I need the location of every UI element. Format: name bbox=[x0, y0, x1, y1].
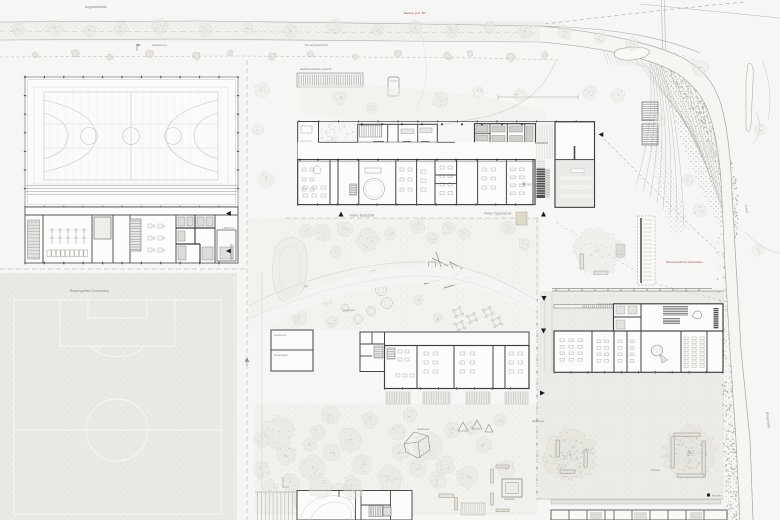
svg-text:Trottoir: Trottoir bbox=[744, 204, 749, 213]
svg-text:Augustastraße: Augustastraße bbox=[85, 5, 107, 9]
svg-text:582.30 m: 582.30 m bbox=[527, 183, 537, 186]
svg-text:Radabstellplätze gedeckt: Radabstellplätze gedeckt bbox=[300, 67, 331, 71]
svg-text:Baulinie gem. BP: Baulinie gem. BP bbox=[404, 11, 426, 15]
svg-text:Brunnen: Brunnen bbox=[712, 494, 722, 498]
svg-text:Spielwiese: Spielwiese bbox=[532, 419, 545, 423]
svg-text:3 Eichen: 3 Eichen bbox=[650, 468, 661, 472]
svg-text:Spielhügel: Spielhügel bbox=[417, 427, 430, 431]
svg-text:Kleine Basisstufe: Kleine Basisstufe bbox=[350, 214, 375, 218]
svg-text:Kleine Tagesschule: Kleine Tagesschule bbox=[484, 212, 512, 216]
svg-text:Besucherparkplatz: Besucherparkplatz bbox=[305, 43, 329, 47]
svg-text:± 582.30 m: ± 582.30 m bbox=[222, 227, 234, 230]
svg-text:Sandspiel: Sandspiel bbox=[504, 498, 515, 501]
svg-text:Rasenspielfeld (vorhanden): Rasenspielfeld (vorhanden) bbox=[70, 289, 109, 293]
svg-text:Geräteraum: Geräteraum bbox=[274, 334, 287, 337]
svg-text:Retentionsfläche Dachwasser: Retentionsfläche Dachwasser bbox=[666, 260, 703, 264]
svg-text:Ringstraße: Ringstraße bbox=[765, 412, 771, 429]
svg-text:Kinderwagen: Kinderwagen bbox=[274, 354, 289, 357]
svg-text:Werkleitung: Werkleitung bbox=[152, 43, 167, 47]
